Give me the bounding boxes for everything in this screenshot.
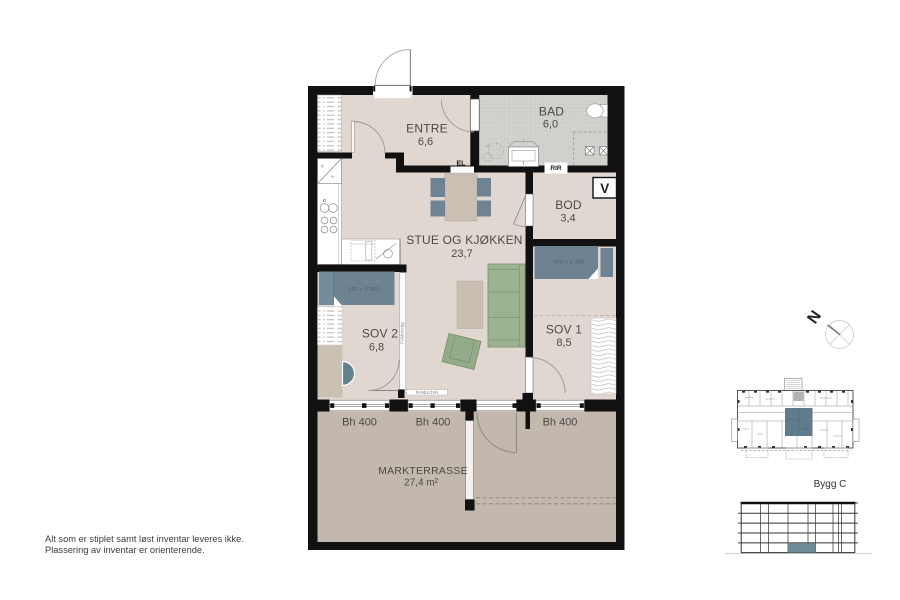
svg-text:6,0: 6,0 [543,119,558,131]
svg-text:SOV 2: SOV 2 [362,327,398,341]
svg-text:Plassering av inventar er orie: Plassering av inventar er orienterende. [45,545,205,555]
svg-text:ENTRE: ENTRE [406,122,448,136]
svg-text:STUE OG KJØKKEN: STUE OG KJØKKEN [406,233,522,247]
svg-text:Alt som er stiplet samt løst i: Alt som er stiplet samt løst inventar le… [45,534,244,544]
svg-text:23,7: 23,7 [451,248,472,260]
svg-text:6,8: 6,8 [369,342,384,354]
svg-text:BAD: BAD [539,105,564,119]
svg-text:BOD: BOD [555,198,582,212]
svg-text:Bh 400: Bh 400 [342,417,377,429]
svg-text:Bygg C: Bygg C [814,479,847,490]
svg-text:RIR: RIR [550,165,562,172]
svg-text:Bh 400: Bh 400 [543,417,578,429]
svg-text:MARKTERRASSE: MARKTERRASSE [378,466,468,477]
svg-text:27,4 m²: 27,4 m² [404,478,439,489]
svg-text:EL: EL [457,161,467,168]
svg-text:Bh 400: Bh 400 [416,417,451,429]
svg-text:Foldevegg: Foldevegg [400,322,405,344]
svg-text:SOV 1: SOV 1 [546,323,582,337]
svg-text:8,5: 8,5 [556,337,571,349]
svg-text:900 x 2 000: 900 x 2 000 [348,287,379,293]
svg-text:PANELOVN: PANELOVN [416,390,439,395]
svg-text:V: V [600,181,609,196]
svg-text:3,4: 3,4 [560,213,575,225]
svg-text:6,6: 6,6 [418,136,433,148]
svg-text:900 x 2 100: 900 x 2 100 [553,260,584,266]
